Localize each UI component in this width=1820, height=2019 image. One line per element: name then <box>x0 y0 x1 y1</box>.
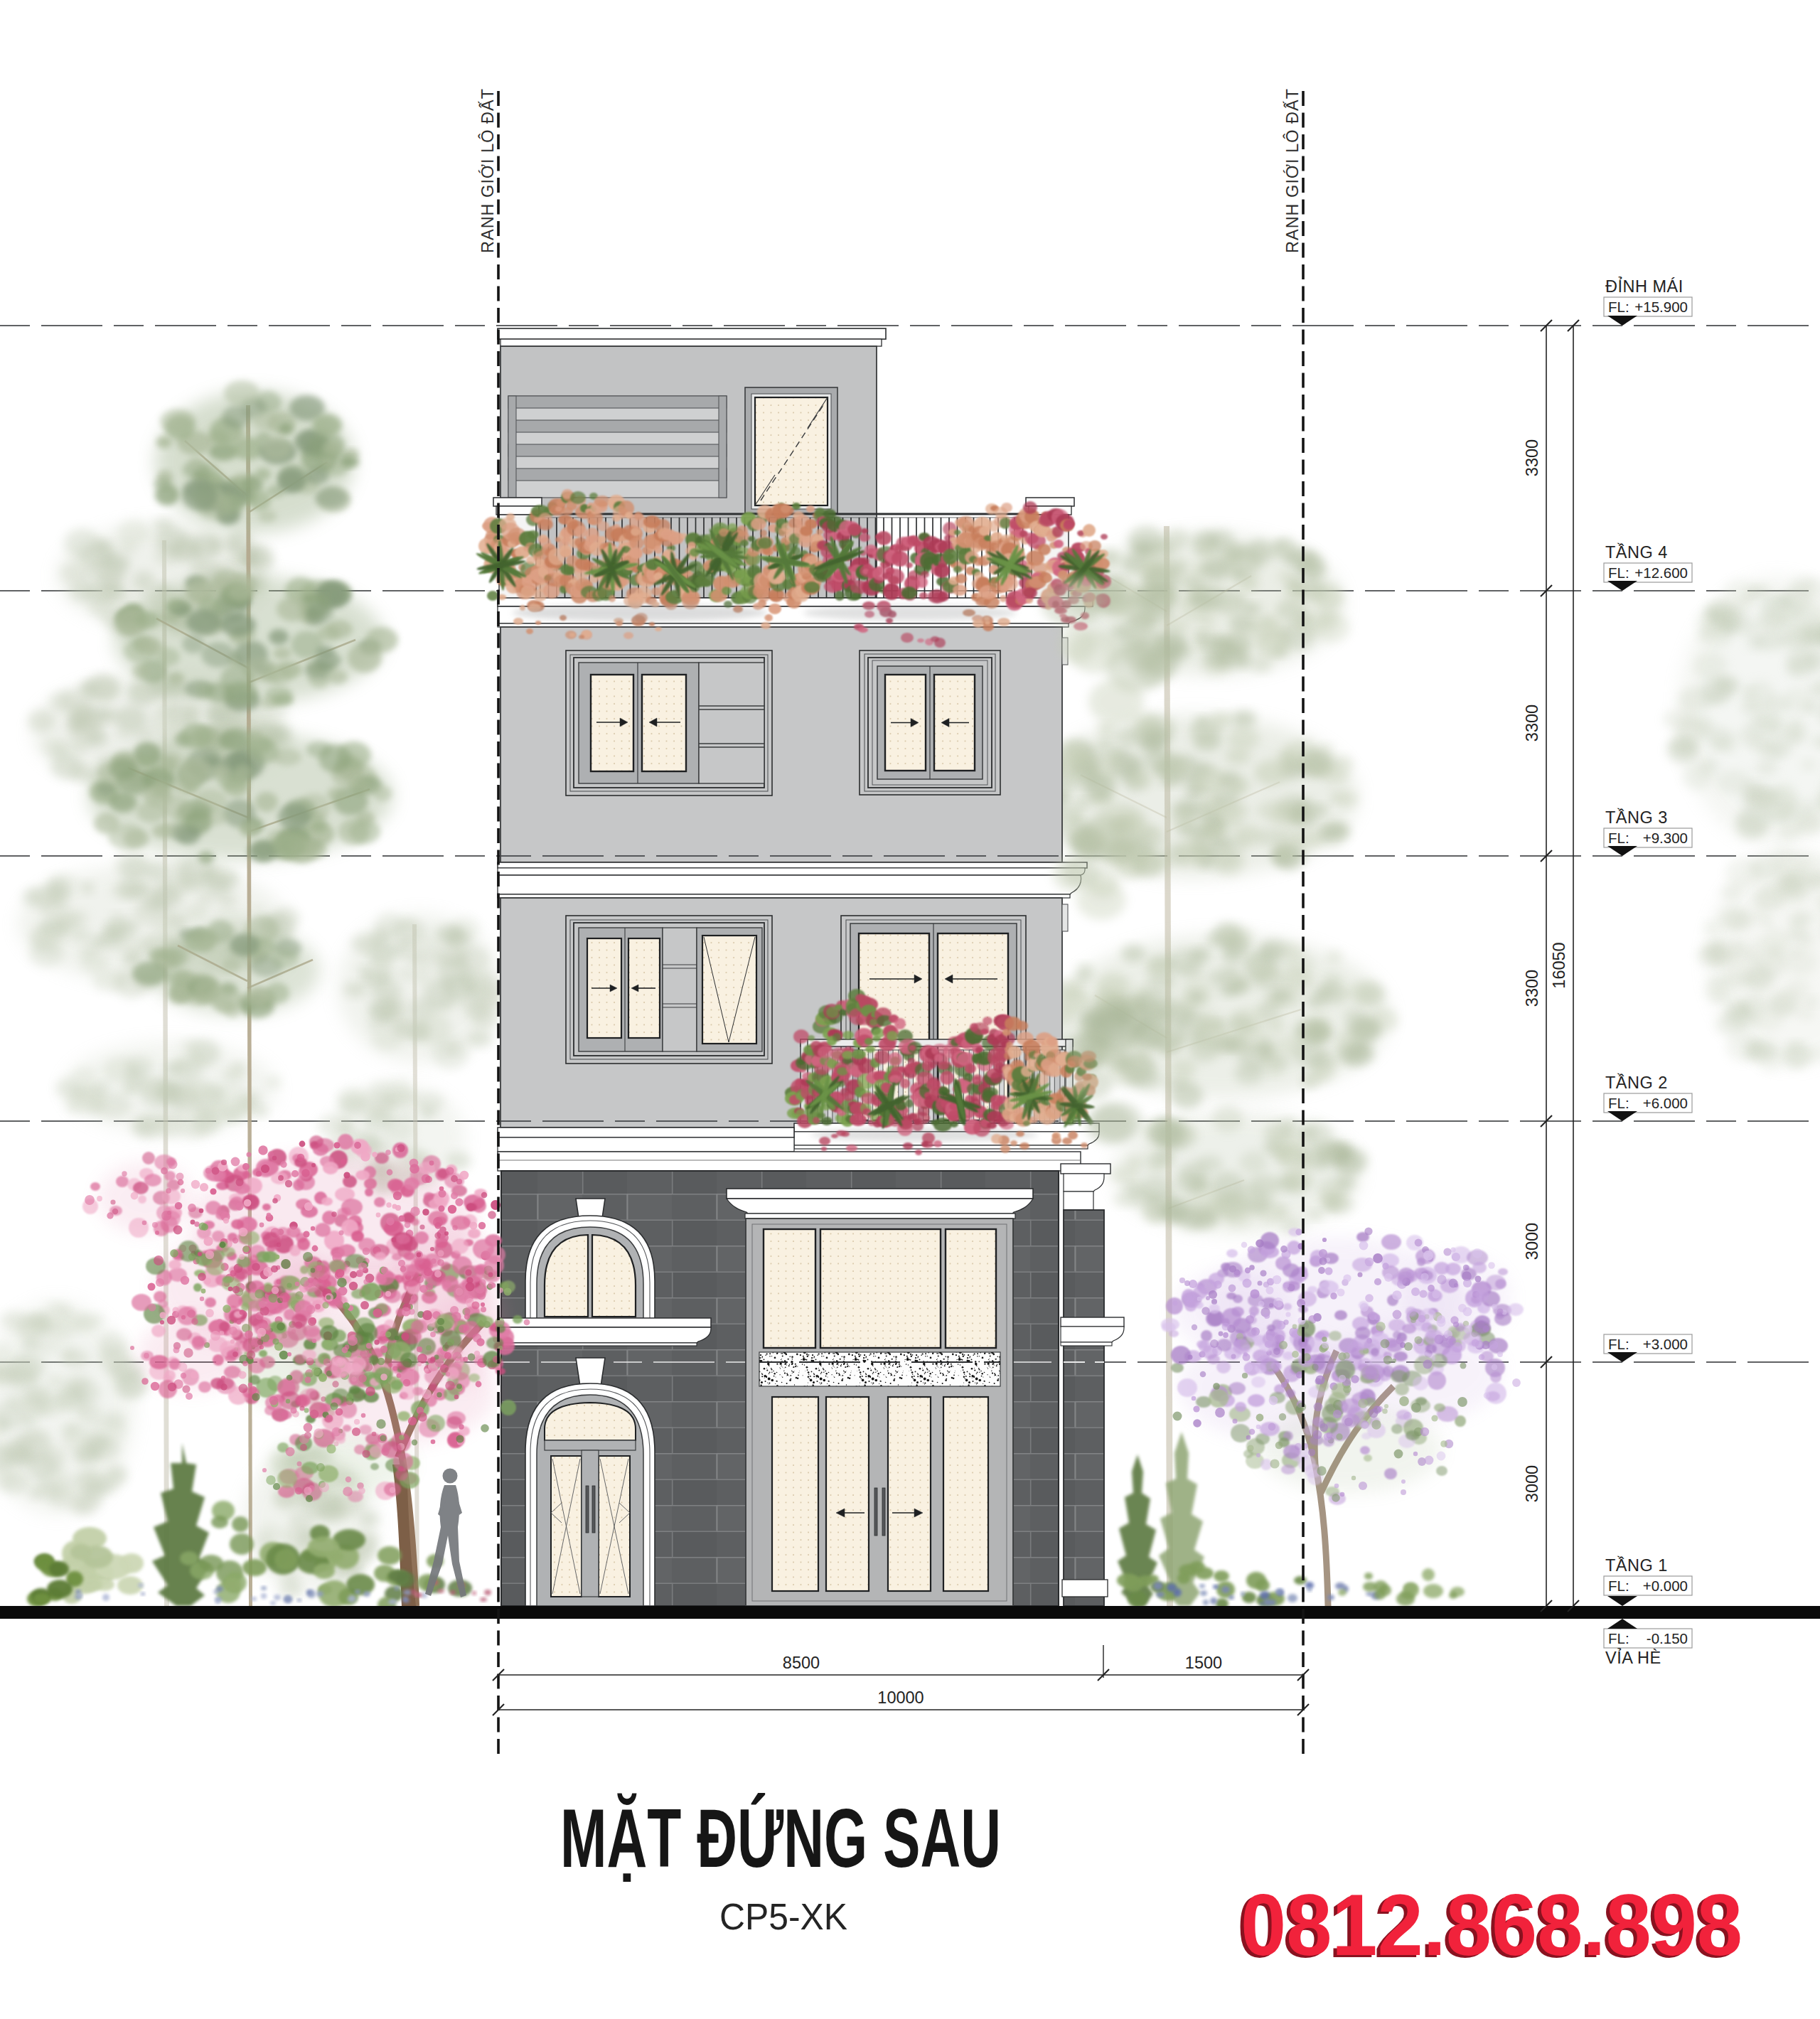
svg-text:FL:: FL: <box>1608 1578 1629 1594</box>
svg-text:+15.900: +15.900 <box>1634 299 1688 315</box>
svg-text:+3.000: +3.000 <box>1643 1336 1688 1352</box>
svg-text:+6.000: +6.000 <box>1643 1095 1688 1111</box>
svg-text:FL:: FL: <box>1608 1095 1629 1111</box>
svg-text:MẶT ĐỨNG SAU: MẶT ĐỨNG SAU <box>560 1792 1001 1885</box>
svg-text:FL:: FL: <box>1608 299 1629 315</box>
svg-text:ĐỈNH MÁI: ĐỈNH MÁI <box>1605 276 1683 296</box>
svg-text:3300: 3300 <box>1523 705 1541 741</box>
svg-text:FL:: FL: <box>1608 564 1629 581</box>
svg-text:3000: 3000 <box>1523 1465 1541 1502</box>
svg-text:FL:: FL: <box>1608 830 1629 846</box>
svg-text:+12.600: +12.600 <box>1634 564 1688 581</box>
svg-text:RANH GIỚI LÔ ĐẤT: RANH GIỚI LÔ ĐẤT <box>1283 88 1302 253</box>
svg-text:TẦNG 1: TẦNG 1 <box>1605 1555 1668 1575</box>
svg-text:VỈA HÈ: VỈA HÈ <box>1605 1647 1661 1667</box>
svg-text:CP5-XK: CP5-XK <box>719 1896 847 1937</box>
svg-text:3300: 3300 <box>1523 439 1541 476</box>
svg-text:1500: 1500 <box>1185 1654 1222 1672</box>
svg-text:+9.300: +9.300 <box>1643 830 1688 846</box>
svg-text:+0.000: +0.000 <box>1643 1578 1688 1594</box>
svg-text:-0.150: -0.150 <box>1647 1630 1688 1646</box>
svg-text:10000: 10000 <box>877 1688 924 1707</box>
svg-text:FL:: FL: <box>1608 1630 1629 1646</box>
svg-text:TẦNG 3: TẦNG 3 <box>1605 808 1668 827</box>
svg-text:8500: 8500 <box>783 1654 820 1672</box>
svg-text:3000: 3000 <box>1523 1223 1541 1260</box>
svg-text:TẦNG 4: TẦNG 4 <box>1605 542 1668 562</box>
svg-text:FL:: FL: <box>1608 1336 1629 1352</box>
svg-text:16050: 16050 <box>1550 942 1568 988</box>
svg-text:TẦNG 2: TẦNG 2 <box>1605 1073 1668 1092</box>
svg-text:3300: 3300 <box>1523 970 1541 1007</box>
svg-text:0812.868.898: 0812.868.898 <box>1241 1877 1743 1974</box>
svg-text:RANH GIỚI LÔ ĐẤT: RANH GIỚI LÔ ĐẤT <box>478 88 497 253</box>
